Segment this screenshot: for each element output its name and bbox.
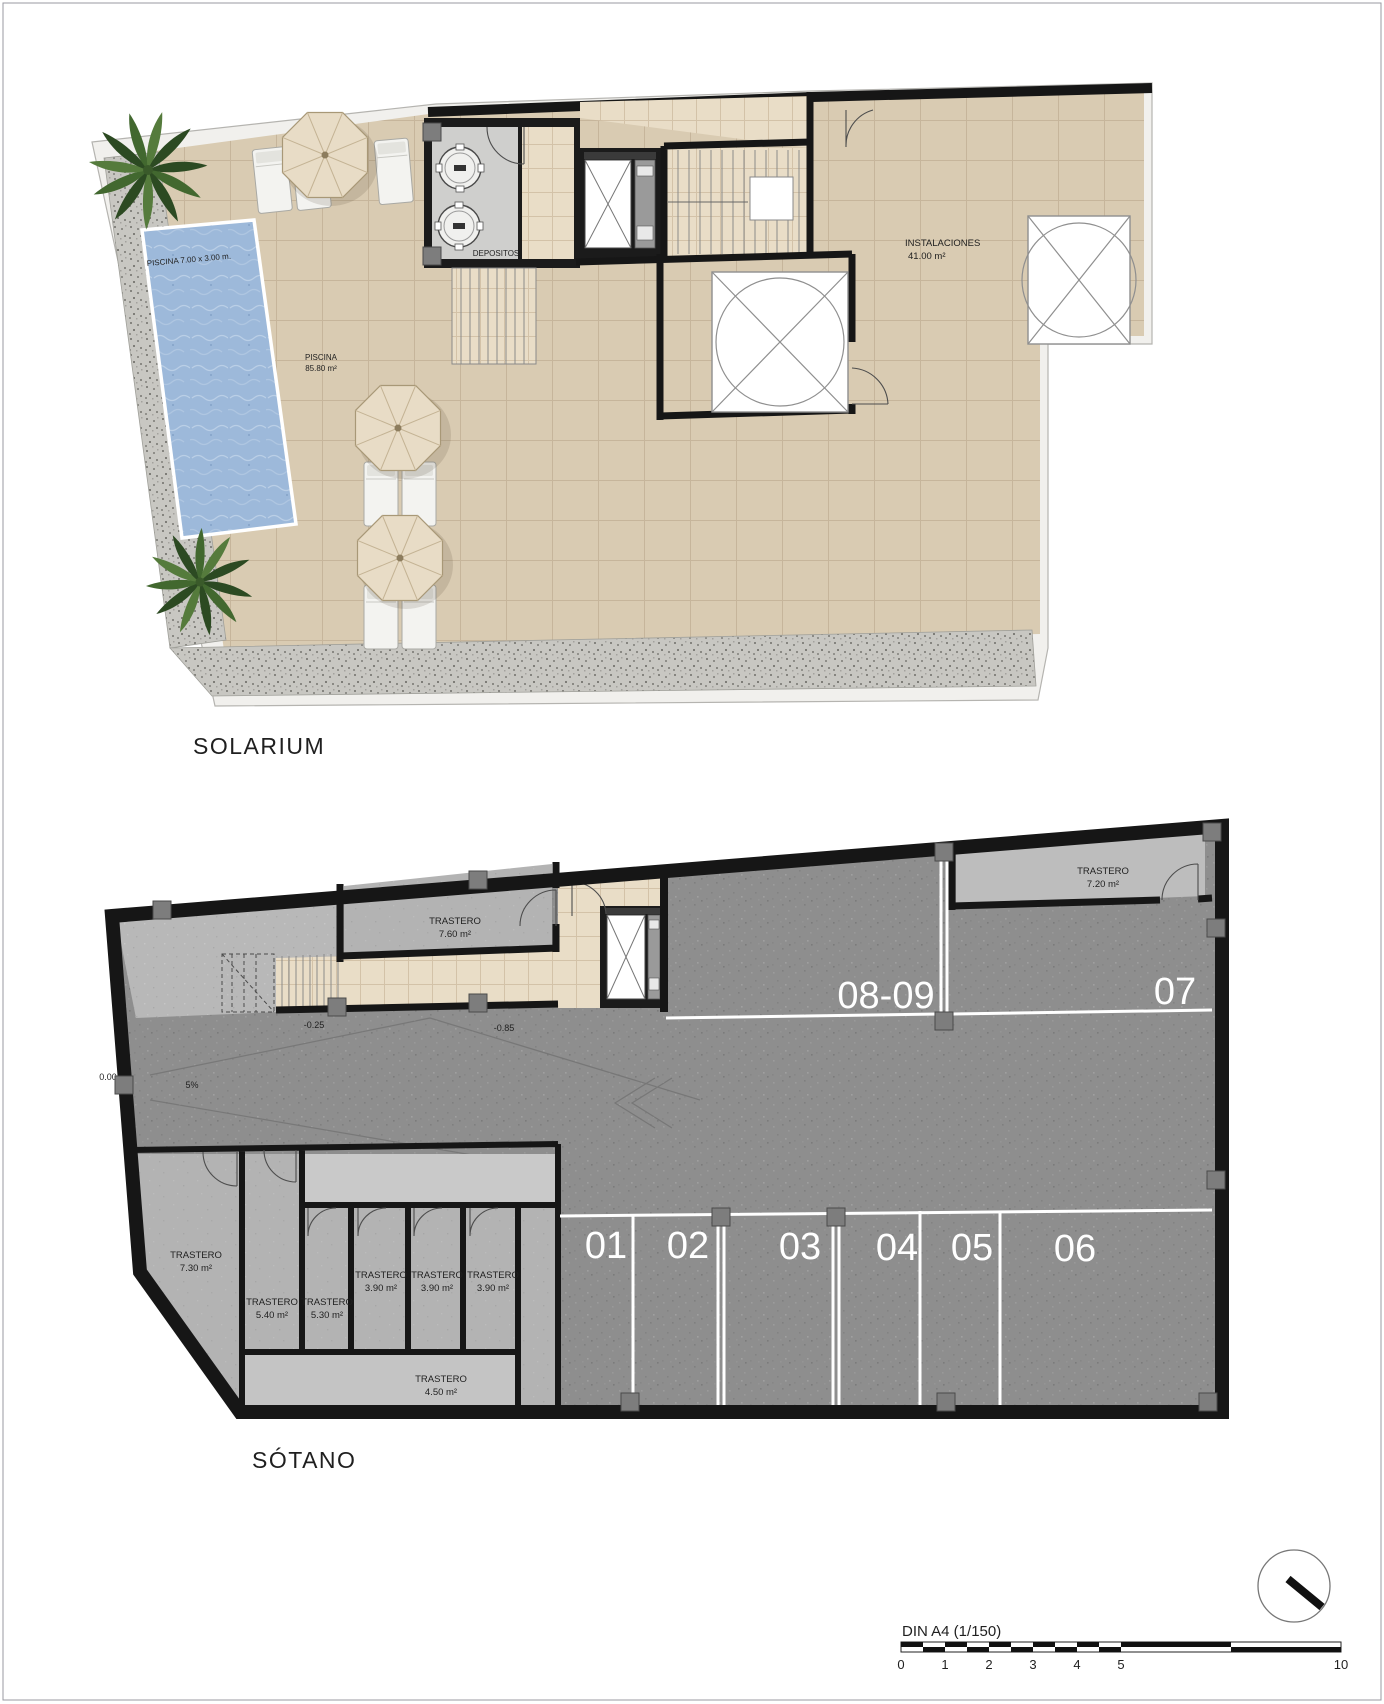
- scale-bar: DIN A4 (1/150) 0 1 2 3 4 5 10: [897, 1623, 1348, 1672]
- skylight-icon: [1022, 216, 1136, 344]
- storeroom-390c-area: 3.90 m²: [477, 1283, 509, 1294]
- parking-space-04: 04: [876, 1227, 918, 1269]
- storeroom-720-name: TRASTERO: [1077, 866, 1129, 877]
- storeroom-720-area: 7.20 m²: [1087, 879, 1119, 890]
- storeroom-540-area: 5.40 m²: [256, 1310, 288, 1321]
- floor-plan-drawing: PISCINA 7.00 x 3.00 m. DEPOSITOS: [0, 0, 1384, 1704]
- sotano-title: SÓTANO: [252, 1447, 356, 1473]
- level-street: 0.00: [99, 1072, 117, 1082]
- level-mid: -0.25: [304, 1020, 325, 1030]
- solarium-plan: PISCINA 7.00 x 3.00 m. DEPOSITOS: [88, 83, 1152, 759]
- instalaciones-area-label: 41.00 m²: [908, 251, 946, 262]
- column-marker: [469, 994, 487, 1012]
- column-marker: [153, 901, 171, 919]
- scale-tick-3: 3: [1029, 1657, 1036, 1672]
- column-marker: [115, 1076, 133, 1094]
- column-marker: [423, 247, 441, 265]
- column-marker: [469, 871, 487, 889]
- sun-lounger: [374, 138, 413, 205]
- storeroom-760-name: TRASTERO: [429, 916, 481, 927]
- storeroom-760-area: 7.60 m²: [439, 929, 471, 940]
- parking-space-02: 02: [667, 1225, 709, 1267]
- storeroom-530: [304, 1208, 348, 1352]
- sotano-plan: TRASTERO 7.20 m² TRASTERO 7.60 m² 08-09 …: [99, 823, 1225, 1473]
- column-marker: [328, 998, 346, 1016]
- storeroom-390b-area: 3.90 m²: [421, 1283, 453, 1294]
- column-marker: [827, 1208, 845, 1226]
- storeroom-390a-area: 3.90 m²: [365, 1283, 397, 1294]
- storeroom-450: [244, 1352, 518, 1406]
- skylight-icon: [712, 272, 848, 412]
- column-marker: [935, 843, 953, 861]
- elevator-icon: [600, 906, 664, 1008]
- elevator-icon: [576, 148, 664, 260]
- column-marker: [1207, 1171, 1225, 1189]
- plan-sheet: PISCINA 7.00 x 3.00 m. DEPOSITOS: [0, 0, 1384, 1704]
- scale-tick-1: 1: [941, 1657, 948, 1672]
- column-marker: [1207, 919, 1225, 937]
- parking-space-01: 01: [585, 1225, 627, 1267]
- column-marker: [621, 1393, 639, 1411]
- stairs-down-icon: [452, 268, 536, 364]
- column-marker: [1203, 823, 1221, 841]
- upper-corridor: [276, 950, 558, 1010]
- depositos-label: DEPOSITOS: [473, 249, 520, 258]
- storeroom-390b-name: TRASTERO: [411, 1270, 463, 1281]
- storeroom-450-name: TRASTERO: [415, 1374, 467, 1385]
- level-slope: 5%: [185, 1080, 198, 1090]
- column-marker: [935, 1012, 953, 1030]
- piscina-name-label: PISCINA: [305, 353, 338, 362]
- piscina-area-label: 85.80 m²: [305, 364, 337, 373]
- solarium-title: SOLARIUM: [193, 733, 325, 759]
- storeroom-730-area: 7.30 m²: [180, 1263, 212, 1274]
- storeroom-450-area: 4.50 m²: [425, 1387, 457, 1398]
- column-marker: [712, 1208, 730, 1226]
- storeroom-530-area: 5.30 m²: [311, 1310, 343, 1321]
- scale-tick-10: 10: [1334, 1657, 1348, 1672]
- scale-label: DIN A4 (1/150): [902, 1623, 1001, 1640]
- column-marker: [937, 1393, 955, 1411]
- column-marker: [423, 123, 441, 141]
- storeroom-530-name: TRASTERO: [301, 1297, 353, 1308]
- storeroom-390c-name: TRASTERO: [467, 1270, 519, 1281]
- instalaciones-name-label: INSTALACIONES: [905, 238, 980, 249]
- parking-space-0809: 08-09: [837, 975, 934, 1017]
- depositos-vestibule: [522, 127, 574, 259]
- storeroom-nook: [520, 1208, 556, 1406]
- scale-tick-4: 4: [1073, 1657, 1080, 1672]
- stairs-icon: [666, 148, 810, 256]
- storeroom-730-name: TRASTERO: [170, 1250, 222, 1261]
- parking-space-03: 03: [779, 1226, 821, 1268]
- scale-tick-5: 5: [1117, 1657, 1124, 1672]
- storeroom-540-name: TRASTERO: [246, 1297, 298, 1308]
- parking-space-06: 06: [1054, 1228, 1096, 1270]
- storeroom-390a-name: TRASTERO: [355, 1270, 407, 1281]
- column-marker: [1199, 1393, 1217, 1411]
- scale-tick-2: 2: [985, 1657, 992, 1672]
- parking-space-07: 07: [1154, 971, 1196, 1013]
- parking-space-05: 05: [951, 1227, 993, 1269]
- north-arrow-icon: [1258, 1550, 1330, 1622]
- scale-tick-0: 0: [897, 1657, 904, 1672]
- level-low: -0.85: [494, 1023, 515, 1033]
- storeroom-540: [244, 1154, 300, 1352]
- lower-corridor: [304, 1154, 556, 1202]
